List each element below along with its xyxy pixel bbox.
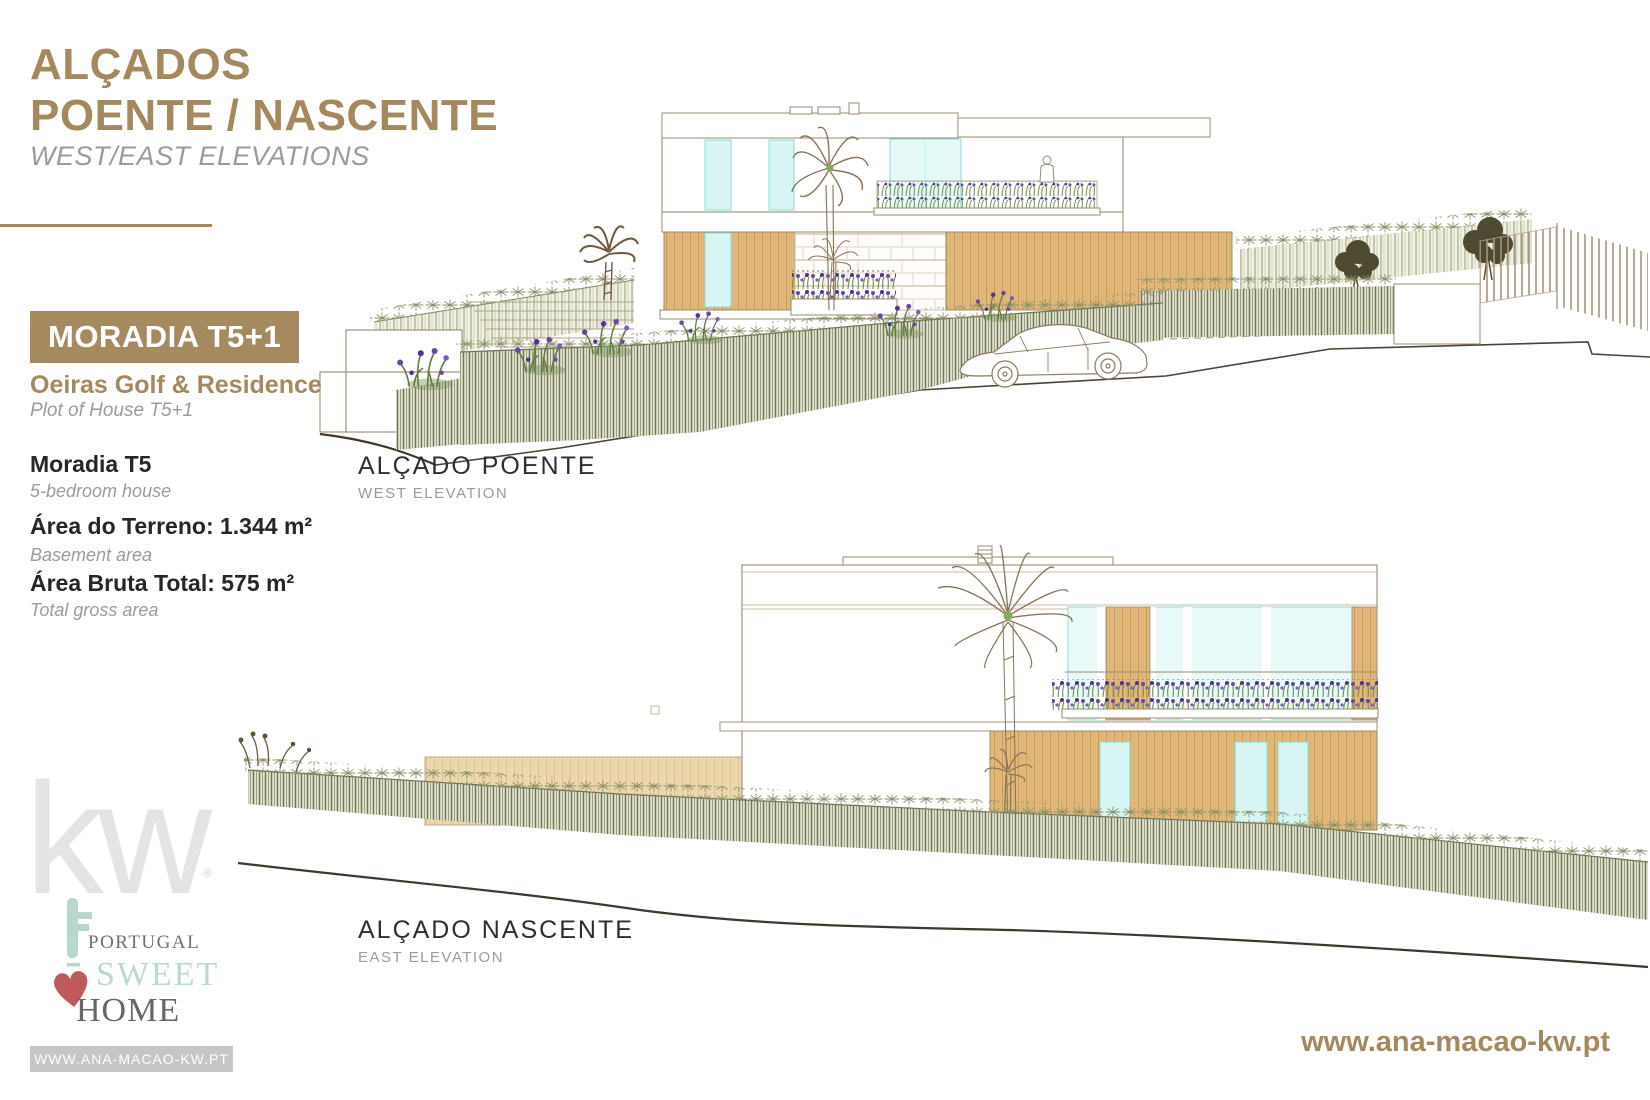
spec-gross-area: Área Bruta Total: 575 m² <box>30 570 294 597</box>
psh-portugal: PORTUGAL <box>88 932 200 954</box>
kw-registered-mark: ® <box>203 866 212 880</box>
west-elevation-subtitle: WEST ELEVATION <box>358 485 597 502</box>
right-railing <box>1561 227 1648 331</box>
east-elevation-label: ALÇADO NASCENTE EAST ELEVATION <box>358 916 634 966</box>
lower-right-hedge <box>1140 286 1396 338</box>
website-badge: WWW.ANA-MACAO-KW.PT <box>30 1046 233 1072</box>
left-tick <box>651 706 659 714</box>
spec-land-area: Área do Terreno: 1.344 m² <box>30 513 312 540</box>
roof-parapet <box>662 103 1210 138</box>
psh-home: HOME <box>76 992 180 1030</box>
accent-rule <box>0 224 212 227</box>
footer-website-url: www.ana-macao-kw.pt <box>1301 1026 1610 1059</box>
west-elevation-title: ALÇADO POENTE <box>358 452 597 481</box>
east-elevation-drawing <box>238 546 1648 967</box>
window-strip-1 <box>705 140 731 210</box>
east-elevation-title: ALÇADO NASCENTE <box>358 916 634 945</box>
window-strip-2 <box>769 140 794 210</box>
development-sub: Plot of House T5+1 <box>30 400 193 422</box>
page-title-line2: POENTE / NASCENTE <box>30 91 498 142</box>
page-title-line1: ALÇADOS <box>30 40 498 91</box>
spec-type: Moradia T5 <box>30 451 151 478</box>
west-elevation-label: ALÇADO POENTE WEST ELEVATION <box>358 452 597 502</box>
page-subtitle: WEST/EAST ELEVATIONS <box>30 141 498 172</box>
mid-slab <box>720 722 1377 731</box>
spec-type-sub: 5-bedroom house <box>30 481 171 502</box>
roof-terrace-planter <box>877 181 1097 208</box>
header-block: ALÇADOS POENTE / NASCENTE WEST/EAST ELEV… <box>30 40 498 172</box>
lower-window-3 <box>1278 742 1308 824</box>
east-elevation-subtitle: EAST ELEVATION <box>358 949 634 966</box>
terrace-ledge <box>874 208 1100 215</box>
development-name: Oeiras Golf & Residence <box>30 371 322 400</box>
property-badge-wrap: MORADIA T5+1 <box>30 311 299 363</box>
window-strip-lower <box>705 233 731 307</box>
planter-flowers <box>792 270 896 301</box>
spec-land-area-sub: Basement area <box>30 545 152 566</box>
brochure-page: ALÇADOS POENTE / NASCENTE WEST/EAST ELEV… <box>0 0 1650 1100</box>
spec-gross-area-sub: Total gross area <box>30 600 158 621</box>
balcony-slab <box>1062 709 1378 718</box>
property-badge: MORADIA T5+1 <box>30 311 299 363</box>
west-elevation-drawing <box>320 103 1650 465</box>
balcony-planter <box>1052 679 1378 710</box>
psh-sweet: SWEET <box>96 956 219 994</box>
gate-wall <box>1394 284 1480 344</box>
